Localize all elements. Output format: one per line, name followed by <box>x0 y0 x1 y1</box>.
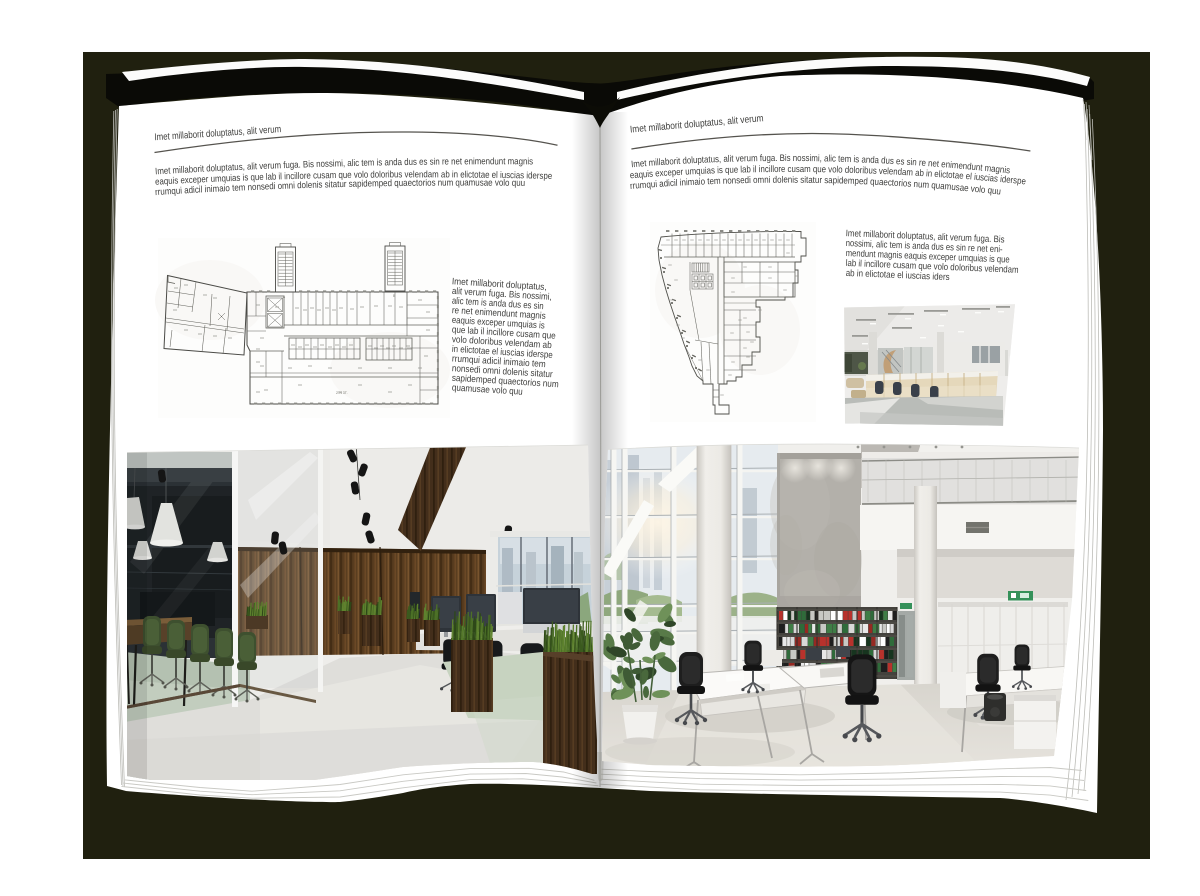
svg-text:B: B <box>393 294 395 298</box>
svg-text:2-N 3T.: 2-N 3T. <box>336 391 348 395</box>
